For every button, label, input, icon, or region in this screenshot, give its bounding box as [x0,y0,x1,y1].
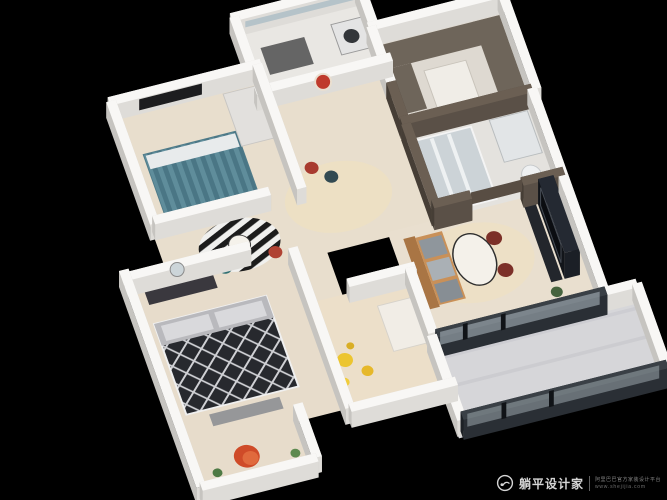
vanity-mirror [170,263,184,277]
watermark-divider [589,476,590,491]
watermark-url: www.shejijia.com [595,484,661,490]
watermark-tagline: 阿里巴巴官方家装设计平台 [595,476,661,483]
brand-logo-icon [496,474,514,492]
window-mullion [502,402,507,419]
red-wall-plate [315,74,331,90]
window-mullion [549,390,554,407]
render-stage: 躺平设计家 阿里巴巴官方家装设计平台 www.shejijia.com [0,0,667,500]
tv-media-wall-side [565,249,580,279]
window-mullion [501,313,506,330]
window-mullion [463,323,468,340]
study-east-wall-side [297,187,306,205]
watermark-brand: 躺平设计家 [519,475,584,492]
watermark: 躺平设计家 阿里巴巴官方家装设计平台 www.shejijia.com [496,474,661,492]
floorplan-3d-render [0,0,667,500]
